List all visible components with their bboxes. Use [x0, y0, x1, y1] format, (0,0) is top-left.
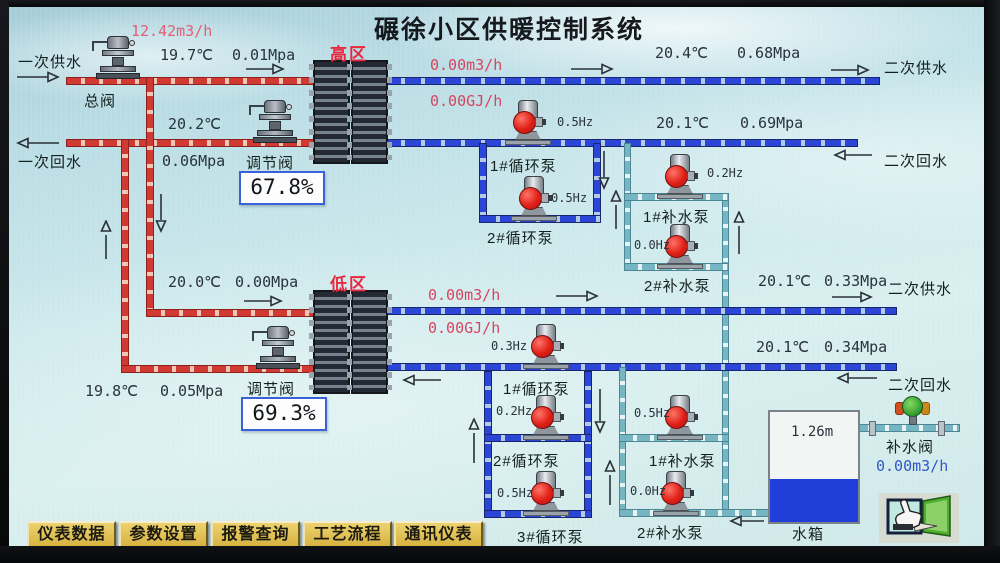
high-sec-supply-pressure: 0.68Mpa	[737, 44, 800, 62]
main-valve-icon	[90, 34, 146, 80]
high-sec-flow: 0.00m3/h	[430, 56, 502, 74]
low-sec-return-label: 二次回水	[888, 374, 952, 395]
flow-arrow-down	[598, 150, 610, 195]
pump-label: 2#循环泵	[487, 227, 554, 248]
low-sec-supply-label: 二次供水	[888, 278, 952, 299]
pump-icon-low-circ-2	[528, 395, 564, 438]
regulating-valve-label-high: 调节阀	[246, 152, 294, 173]
low-sec-return-temp: 20.1℃	[756, 338, 809, 356]
makeup-valve-icon	[895, 396, 931, 428]
flow-arrow-left	[833, 148, 873, 166]
bezel-bottom	[0, 546, 1000, 563]
page-title: 碾徐小区供暖控制系统	[374, 10, 644, 46]
flow-arrow-down	[594, 388, 606, 439]
bezel-right	[984, 0, 1000, 563]
flow-arrow-right	[831, 290, 873, 308]
low-return-temp: 19.8℃	[85, 382, 138, 400]
pump-frequency: 0.5Hz	[634, 406, 670, 420]
low-sec-energy: 0.00GJ/h	[428, 319, 500, 337]
valve-opening-readout-high[interactable]: 67.8%	[239, 171, 325, 205]
makeup-flow-value: 0.00m3/h	[876, 457, 948, 475]
pump-label: 2#补水泵	[637, 522, 704, 543]
low-zone-label: 低区	[330, 270, 368, 295]
primary-supply-pipe-low	[146, 309, 315, 317]
high-sec-supply-temp: 20.4℃	[655, 44, 708, 62]
pump-frequency: 0.5Hz	[497, 486, 533, 500]
primary-return-label: 一次回水	[18, 151, 82, 172]
pump-icon-high-circ-2	[516, 176, 552, 219]
flow-arrow-right	[245, 62, 285, 80]
pump-icon-low-circ-3	[528, 471, 564, 514]
main-valve-label: 总阀	[84, 90, 116, 111]
low-sec-supply-temp: 20.1℃	[758, 272, 811, 290]
secondary-supply-pipe-high	[384, 77, 880, 85]
low-sec-flow: 0.00m3/h	[428, 286, 500, 304]
pump-frequency: 0.2Hz	[496, 404, 532, 418]
valve-opening-readout-low[interactable]: 69.3%	[241, 397, 327, 431]
flow-arrow-right	[830, 63, 870, 81]
secondary-return-pipe-high	[384, 139, 858, 147]
heat-exchanger-low-2	[351, 290, 388, 394]
heat-exchanger-low-1	[313, 290, 350, 394]
pump-frequency: 0.5Hz	[551, 191, 587, 205]
pump-icon-high-makeup-1	[662, 154, 698, 197]
pump-frequency: 0.2Hz	[707, 166, 743, 180]
pump-label: 2#补水泵	[644, 275, 711, 296]
flow-arrow-left	[729, 514, 765, 532]
pump-label: 1#补水泵	[649, 450, 716, 471]
primary-supply-label: 一次供水	[18, 51, 82, 72]
bezel-top	[0, 0, 1000, 7]
mimic-diagram: 碾徐小区供暖控制系统	[0, 0, 1000, 563]
tank-label: 水箱	[792, 523, 824, 544]
pump-icon-high-circ-1	[510, 100, 546, 143]
low-sec-supply-pressure: 0.33Mpa	[824, 272, 887, 290]
flow-arrow-right	[555, 289, 599, 307]
regulating-valve-icon-low	[250, 324, 306, 370]
pump-frequency: 0.0Hz	[634, 238, 670, 252]
high-sec-return-temp: 20.1℃	[656, 114, 709, 132]
high-sec-supply-label: 二次供水	[884, 57, 948, 78]
tank-water-level	[770, 479, 858, 522]
screen-switch-icon[interactable]	[879, 493, 959, 543]
flow-arrow-right	[570, 62, 614, 80]
low-supply-pressure: 0.00Mpa	[235, 273, 298, 291]
high-sec-return-label: 二次回水	[884, 150, 948, 171]
flow-arrow-left	[402, 373, 442, 391]
high-zone-label: 高区	[330, 40, 368, 65]
high-sec-return-pressure: 0.69Mpa	[740, 114, 803, 132]
regulating-valve-label-low: 调节阀	[247, 378, 295, 399]
flow-arrow-up	[100, 220, 112, 265]
secondary-return-pipe-low	[384, 363, 897, 371]
pump-frequency: 0.3Hz	[491, 339, 527, 353]
pipe-flange	[938, 421, 945, 436]
high-return-pressure: 0.06Mpa	[162, 152, 225, 170]
flow-arrow-right	[243, 294, 283, 312]
pump-label: 1#循环泵	[503, 378, 570, 399]
pump-label: 1#循环泵	[490, 155, 557, 176]
tank-level-value: 1.26m	[791, 424, 833, 440]
makeup-valve-label: 补水阀	[886, 436, 934, 457]
bypass-pipe	[484, 371, 492, 518]
flow-arrow-up	[610, 190, 622, 235]
makeup-pipe	[624, 143, 631, 270]
high-supply-temp: 19.7℃	[160, 46, 213, 64]
flow-arrow-down	[155, 193, 167, 238]
flow-arrow-right	[16, 70, 60, 88]
flow-arrow-left	[836, 371, 878, 389]
pump-frequency: 0.5Hz	[557, 115, 593, 129]
pump-label: 2#循环泵	[493, 450, 560, 471]
primary-supply-riser	[146, 77, 154, 317]
low-return-pressure: 0.05Mpa	[160, 382, 223, 400]
bypass-pipe	[584, 371, 592, 518]
bypass-pipe	[479, 143, 487, 222]
secondary-supply-pipe-low	[384, 307, 897, 315]
pipe-flange	[869, 421, 876, 436]
regulating-valve-icon-high	[247, 98, 303, 144]
pump-label: 1#补水泵	[643, 206, 710, 227]
high-supply-pressure: 0.01Mpa	[232, 46, 295, 64]
heat-exchanger-high-1	[313, 60, 350, 164]
low-sec-return-pressure: 0.34Mpa	[824, 338, 887, 356]
flow-arrow-up	[468, 418, 480, 469]
pump-frequency: 0.0Hz	[630, 484, 666, 498]
makeup-riser-pipe	[722, 193, 729, 516]
makeup-pipe	[619, 367, 626, 517]
high-return-temp: 20.2℃	[168, 115, 221, 133]
high-sec-energy: 0.00GJ/h	[430, 92, 502, 110]
pump-label: 3#循环泵	[517, 526, 584, 547]
flow-arrow-up	[733, 211, 745, 260]
flow-arrow-up	[604, 460, 616, 511]
low-supply-temp: 20.0℃	[168, 273, 221, 291]
hmi-screen: 碾徐小区供暖控制系统	[0, 0, 1000, 563]
primary-return-riser	[121, 139, 129, 373]
primary-flow-value: 12.42m3/h	[131, 22, 212, 40]
heat-exchanger-high-2	[351, 60, 388, 164]
pump-icon-low-circ-1	[528, 324, 564, 367]
bezel-left	[0, 0, 9, 563]
